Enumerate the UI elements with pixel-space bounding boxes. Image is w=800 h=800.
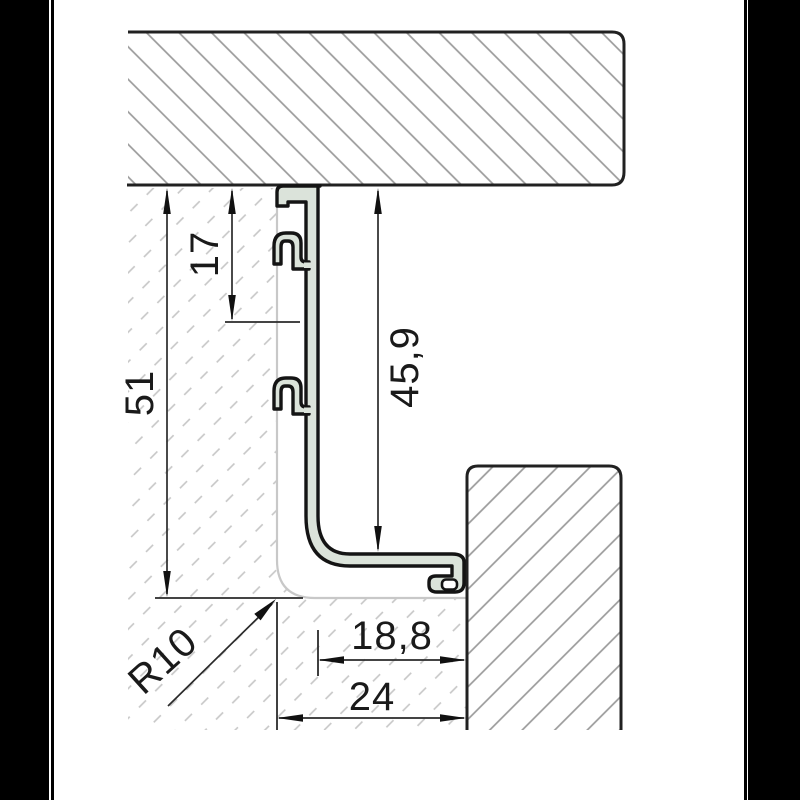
profile-end-hook-slot <box>442 580 457 590</box>
hook-upper-joint-patch <box>304 263 314 269</box>
top-panel <box>127 32 624 185</box>
bottom-panel <box>467 466 621 730</box>
dimension-label-51: 51 <box>118 370 162 417</box>
paper-border-left <box>51 0 54 800</box>
technical-drawing: 51 17 45,9 18,8 24 R10 <box>0 0 800 800</box>
image-viewer-stage: 51 17 45,9 18,8 24 R10 <box>0 0 800 800</box>
paper-border-right <box>744 0 747 800</box>
dimension-label-24: 24 <box>349 675 396 719</box>
hook-lower-joint-patch <box>304 408 314 414</box>
dimension-label-459: 45,9 <box>383 326 427 408</box>
dimension-label-188: 18,8 <box>351 614 433 658</box>
dimension-label-17: 17 <box>183 231 227 278</box>
